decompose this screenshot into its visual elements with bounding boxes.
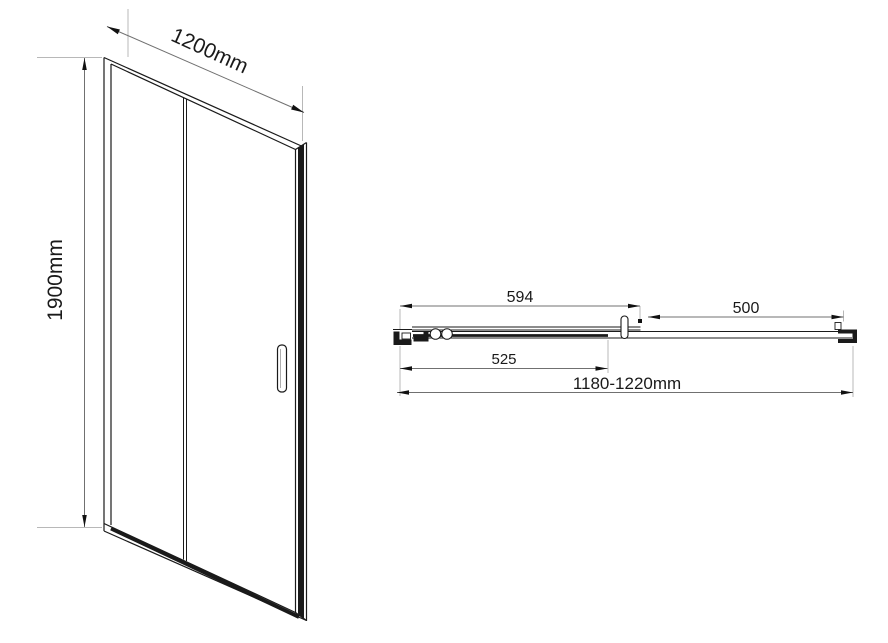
arrow-overall-right [841, 390, 853, 395]
drawing-canvas: 1200mm 1900mm [0, 0, 888, 643]
arrow-overall-left [397, 390, 409, 395]
plan-profile [393, 316, 857, 345]
technical-drawing: 1200mm 1900mm [0, 0, 888, 643]
arrow-594-left [400, 304, 412, 309]
roller-wheel-1 [430, 329, 441, 340]
front-width-label: 1200mm [168, 24, 252, 79]
top-rail-upper [104, 58, 303, 147]
arrow-525-right [596, 366, 608, 371]
arrow-500-right [832, 315, 844, 320]
door-handle [278, 345, 287, 392]
arrow-width-left [107, 27, 120, 35]
front-dimension-lines [85, 27, 305, 528]
door-frame [104, 58, 307, 622]
right-profile-notch [835, 323, 841, 330]
plan-view: 594 500 525 1180-1220mm [393, 289, 857, 397]
plan-fixed-panel-label: 594 [507, 289, 534, 306]
plan-sliding-panel-label: 525 [491, 351, 516, 368]
arrow-500-left [648, 315, 660, 320]
roller-carriage [414, 332, 429, 342]
arrow-height-bottom [82, 515, 87, 527]
arrow-525-left [400, 366, 412, 371]
top-rail-lower [111, 64, 296, 150]
bottom-rail-stripe [111, 529, 299, 618]
right-post-fill [298, 145, 304, 620]
front-view: 1200mm 1900mm [37, 9, 307, 621]
arrow-594-right [628, 304, 640, 309]
left-profile-insert [402, 333, 411, 339]
handle-plan [621, 316, 628, 339]
roller-wheel-2 [442, 329, 453, 340]
plan-opening-label: 500 [733, 300, 760, 317]
right-wall-profile [838, 330, 857, 344]
arrow-height-top [82, 58, 87, 70]
front-height-label: 1900mm [44, 239, 67, 321]
plan-overall-label: 1180-1220mm [573, 374, 681, 393]
tick-fixed-panel-end [638, 319, 642, 323]
bottom-rail-lower [104, 531, 307, 621]
